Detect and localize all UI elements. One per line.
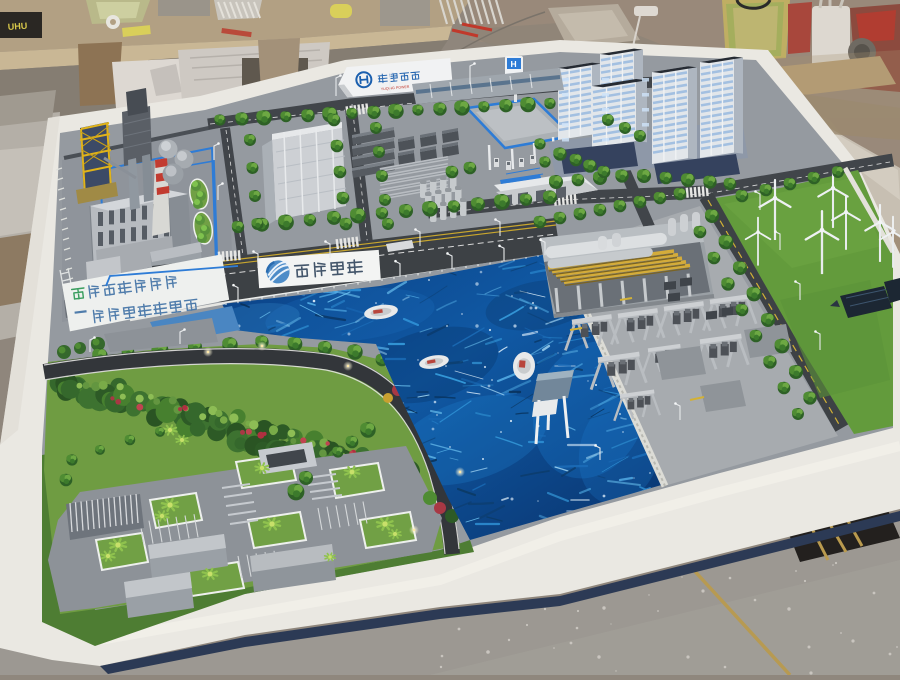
svg-text:H: H	[511, 59, 517, 69]
svg-text:UHU: UHU	[7, 21, 27, 32]
